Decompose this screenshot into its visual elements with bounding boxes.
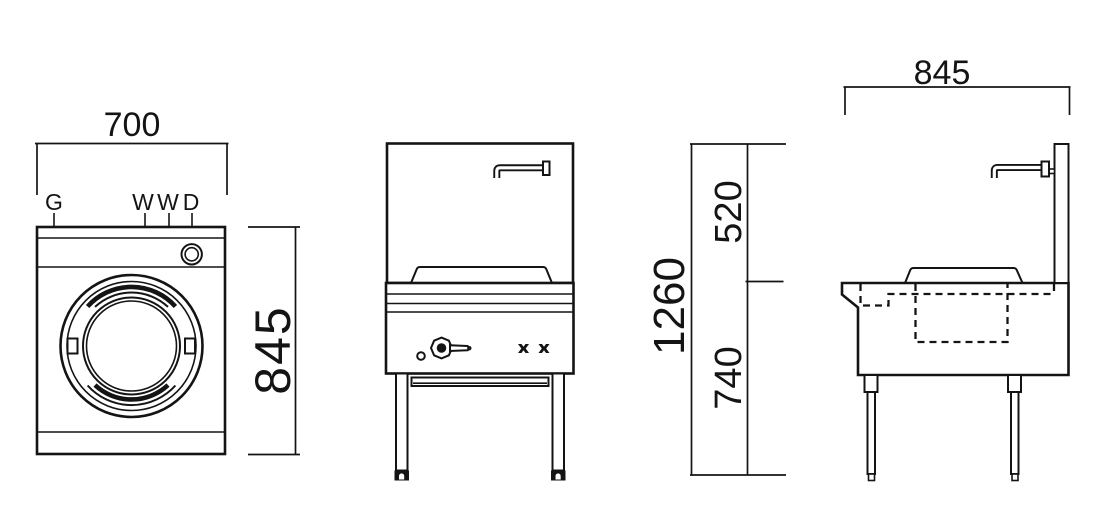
dim-text-845-depth: 845 [245,305,301,394]
front-elevation-view [386,144,574,481]
dim-text-520: 520 [708,180,750,243]
hot-water-label: W [132,189,154,215]
front-right-leg [553,374,565,471]
faucet-side [994,162,1054,179]
height-dimensions: 1260 520 740 [645,144,786,475]
dim-side-width: 845 [844,54,1071,115]
backsplash-panel-side [1055,144,1069,283]
front-body-outline [386,283,574,374]
dim-plan-depth: 845 [245,227,301,455]
front-left-leg [396,374,408,471]
cold-water-label: W [157,189,179,215]
side-body-outline [842,283,1069,375]
faucet-spout-bore [994,168,1043,179]
wok-collar-front [411,267,552,283]
valve-stem-dot [437,343,447,353]
dim-text-1260: 1260 [645,257,694,355]
valve-lever [450,345,469,351]
front-left-foot [395,471,410,481]
side-rear-leg [1008,375,1021,481]
dim-text-740: 740 [708,346,750,409]
leg-foot [869,474,875,481]
leg-tube [868,392,876,474]
trivet-lug-left [68,339,78,354]
dim-text-700: 700 [104,106,161,144]
foot-notch [556,473,561,479]
plan-view: 700 G W W D [35,106,301,455]
gas-label: G [45,189,63,215]
front-right-foot [551,471,566,481]
trivet-lug-right [185,339,195,354]
leg-tube [1011,392,1019,474]
plan-outline [37,227,225,454]
connection-labels: G W W D [45,189,199,226]
technical-drawing-sheet: 700 G W W D [0,0,1098,528]
faucet-mount-flange [543,162,550,176]
side-elevation-view: 845 [842,54,1071,481]
faucet-mount-flange [1042,162,1050,177]
under-rail [412,378,549,387]
dim-plan-width: 700 [35,106,229,195]
wok-collar-side [905,268,1023,283]
side-front-leg [865,375,878,481]
drain-label: D [183,189,200,215]
dim-text-845-width: 845 [914,54,971,92]
foot-notch [399,473,404,479]
leg-sleeve [1008,375,1021,392]
wok-range-drawing: 700 G W W D [0,0,1098,528]
leg-foot [1012,474,1018,481]
leg-sleeve [865,375,878,392]
